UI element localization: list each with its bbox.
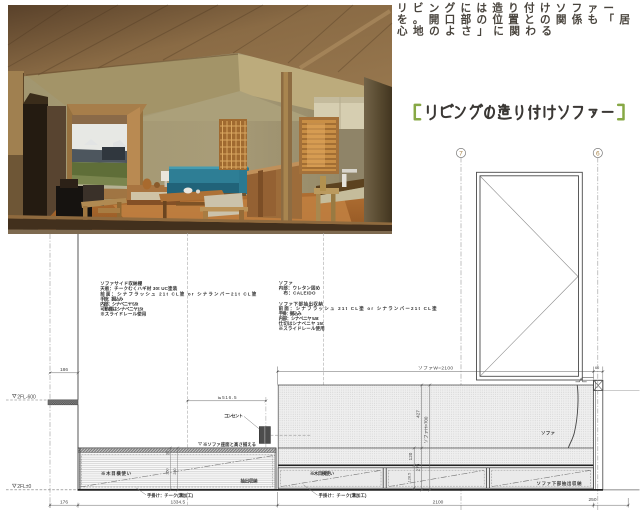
svg-text:186: 186 [60, 367, 68, 373]
svg-text:250: 250 [588, 497, 596, 503]
svg-text:7: 7 [459, 151, 463, 158]
svg-text:※スライドレール使用: ※スライドレール使用 [279, 325, 326, 332]
svg-text:2FL±0: 2FL±0 [17, 484, 31, 490]
svg-text:を。開口部の位置との関係も「居: を。開口部の位置との関係も「居 [397, 13, 630, 26]
svg-text:コンセント: コンセント [224, 414, 243, 420]
svg-text:1334.5: 1334.5 [170, 499, 185, 505]
svg-text:布：CALEIDO: 布：CALEIDO [284, 290, 316, 297]
svg-text:※木目横使い: ※木目横使い [310, 470, 335, 477]
svg-text:※スライドレール使用: ※スライドレール使用 [100, 311, 147, 318]
svg-text:前面：シナフラッシュ 21t CL塗 or シナランバー21: 前面：シナフラッシュ 21t CL塗 or シナランバー21t CL塗 [100, 290, 257, 297]
svg-text:ソファW=2100: ソファW=2100 [418, 366, 453, 372]
svg-text:手掛け：チーク(溝加工): 手掛け：チーク(溝加工) [147, 492, 194, 499]
svg-text:120: 120 [408, 452, 413, 460]
svg-text:30: 30 [166, 451, 170, 455]
svg-text:128.5: 128.5 [408, 473, 412, 483]
svg-text:≒516.5: ≒516.5 [218, 395, 237, 400]
svg-text:手掛け：チーク(溝加工): 手掛け：チーク(溝加工) [319, 492, 368, 499]
svg-text:273: 273 [416, 463, 421, 471]
svg-text:427: 427 [416, 410, 421, 418]
svg-text:心地のよさ」に関わる: 心地のよさ」に関わる [397, 24, 552, 37]
svg-text:2FL-600: 2FL-600 [17, 394, 36, 400]
svg-text:※ソファ座面と高さ揃える: ※ソファ座面と高さ揃える [203, 441, 256, 448]
svg-text:抽出収納: 抽出収納 [241, 478, 259, 485]
svg-text:※木目横使い: ※木目横使い [101, 470, 132, 477]
svg-text:2100: 2100 [433, 499, 444, 505]
svg-text:ソファ下部抽出収納: ソファ下部抽出収納 [537, 480, 583, 487]
svg-text:60: 60 [595, 366, 599, 370]
svg-text:176: 176 [60, 499, 68, 505]
svg-text:前面：シナフラッシュ 21t CL塗 or シナランバー21: 前面：シナフラッシュ 21t CL塗 or シナランバー21t CL塗 [279, 305, 438, 312]
svg-text:280: 280 [173, 468, 177, 474]
svg-text:250: 250 [166, 468, 170, 474]
svg-text:6: 6 [596, 151, 600, 158]
svg-text:リビングには造り付けソファー: リビングには造り付けソファー [397, 1, 614, 14]
